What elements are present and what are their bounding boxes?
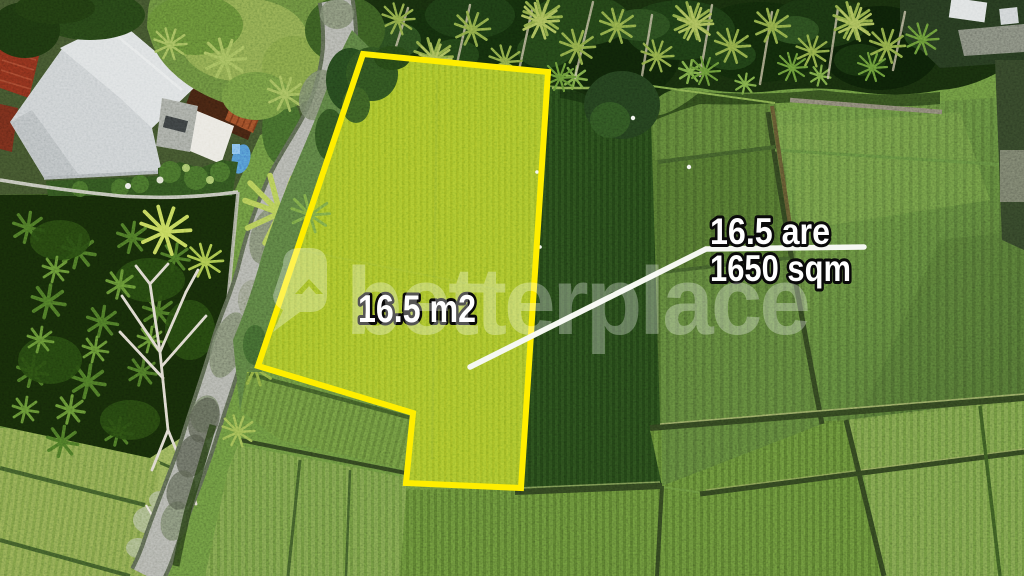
svg-text:16.5 are: 16.5 are bbox=[710, 211, 830, 252]
svg-text:betterplace: betterplace bbox=[346, 248, 809, 355]
